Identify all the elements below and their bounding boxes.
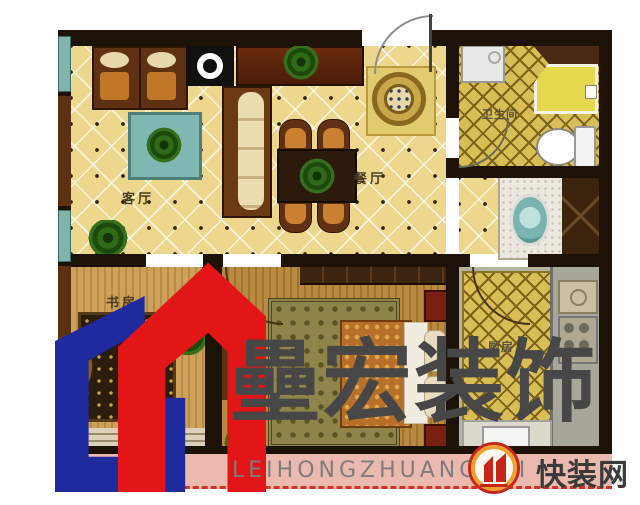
- badge-building-icon: [496, 453, 506, 482]
- washing-machine: [461, 45, 505, 83]
- dining-chair-seat: [285, 128, 306, 148]
- dining-chair: [279, 199, 312, 233]
- lamp-icon: [197, 53, 223, 79]
- wall-mid-c: [281, 254, 455, 267]
- window: [58, 36, 71, 92]
- dining-chair: [279, 119, 312, 153]
- bathroom-label: 卫生间: [482, 106, 518, 122]
- living-room-label: 客厅: [122, 188, 154, 207]
- wall-top-left: [58, 30, 362, 46]
- dining-chair-seat: [323, 204, 344, 224]
- dining-chair: [317, 119, 350, 153]
- armchair-cushion: [100, 52, 129, 68]
- entry-door-leaf: [429, 14, 432, 72]
- wall-mid-a: [58, 254, 146, 267]
- sofa: [222, 86, 272, 218]
- armchair-cushion: [147, 52, 176, 68]
- dining-chair: [317, 199, 350, 233]
- site-badge: [468, 442, 520, 494]
- site-name: 快装网: [536, 450, 629, 494]
- wall-right: [599, 30, 612, 454]
- armchair-seat: [147, 72, 176, 100]
- badge-base-bar: [480, 484, 508, 487]
- kitchen-vent: [558, 280, 598, 314]
- sofa-cushions: [238, 92, 264, 210]
- armchair: [92, 46, 141, 110]
- bedroom-wardrobe: [300, 267, 446, 285]
- toilet-tank: [574, 126, 596, 168]
- wall-bath-bottom: [446, 166, 612, 178]
- entry-medallion-rug: [366, 66, 436, 136]
- floor-plan: 客厅 餐厅 卫生间 书房 厨房 壘宏装饰 LEIHONGZHUANGSHI 快装…: [0, 0, 640, 505]
- dining-chair-seat: [323, 128, 344, 148]
- dining-room-label: 餐厅: [354, 168, 386, 187]
- wall-panel: [58, 96, 71, 206]
- coffee-table: [128, 112, 202, 180]
- dining-chair-seat: [285, 204, 306, 224]
- entry-door-arc: [374, 15, 433, 74]
- dining-centerpiece: [299, 158, 335, 194]
- dining-table: [277, 149, 357, 203]
- armchair: [139, 46, 188, 110]
- vanity-sink: [510, 194, 550, 246]
- vanity-counter: [498, 176, 566, 260]
- side-table-lamp: [186, 46, 234, 86]
- living-floor-plant: [86, 220, 130, 256]
- console-plant: [283, 44, 319, 80]
- vent-circle: [570, 289, 587, 306]
- brand-watermark-cn: 壘宏装饰: [230, 338, 598, 428]
- shower: [534, 64, 598, 114]
- wall-top-right: [432, 30, 612, 46]
- window: [58, 210, 71, 262]
- wall-kitchen-top-b: [528, 254, 612, 267]
- closet: [562, 176, 599, 256]
- shower-door-handle: [585, 85, 597, 99]
- medallion-inner: [384, 84, 414, 114]
- washing-machine-dial: [488, 51, 501, 64]
- badge-building-icon: [484, 456, 493, 482]
- armchair-seat: [100, 72, 129, 100]
- coffee-table-plant: [146, 127, 182, 163]
- hall-floor: [459, 178, 499, 254]
- wall-bath-left: [446, 30, 459, 118]
